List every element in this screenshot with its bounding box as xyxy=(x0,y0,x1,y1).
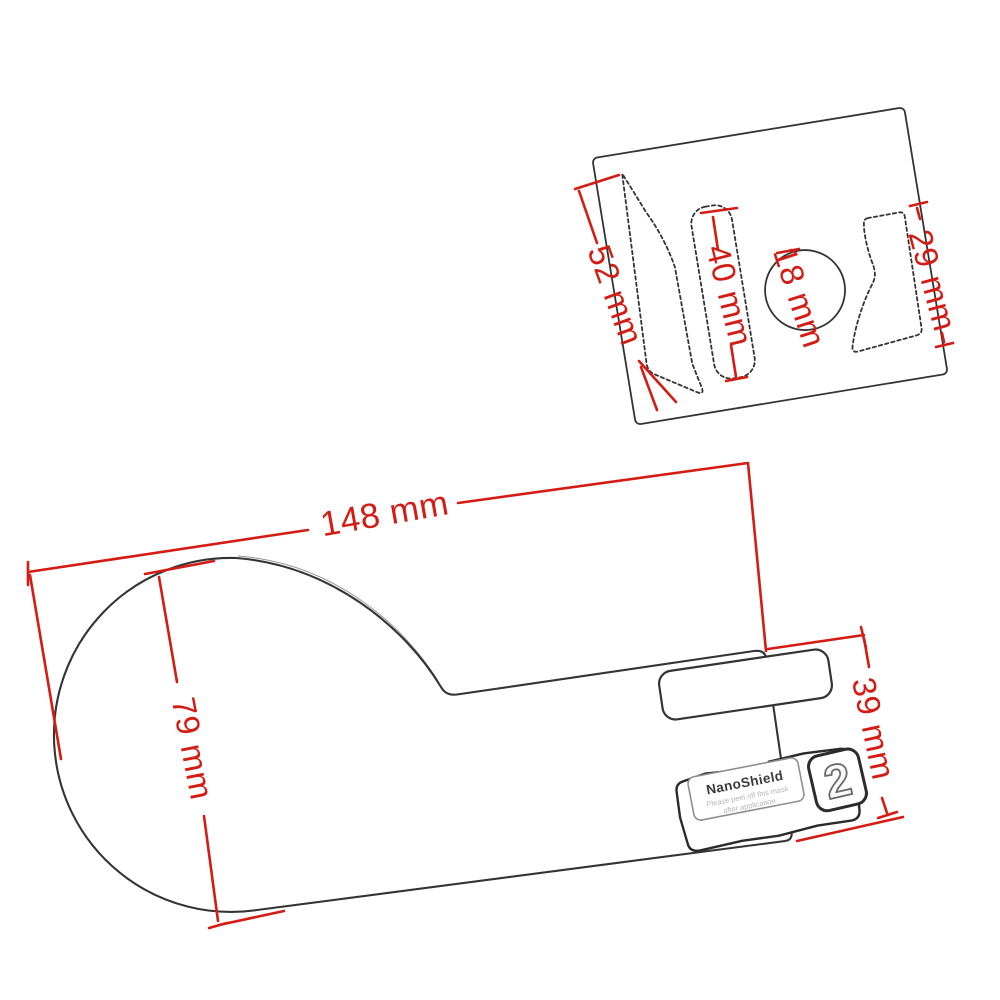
dim-148mm-label: 148 mm xyxy=(317,483,451,544)
dim-79-ext-bottom xyxy=(219,911,284,925)
dim-39-line-a xyxy=(864,638,869,667)
dim-148-line-b xyxy=(458,463,748,503)
product-dimension-diagram: 52 mm 40 mm 18 mm 29 mm xyxy=(0,0,1000,1000)
side-pull-tab xyxy=(657,648,833,721)
step-badge-group: 2 xyxy=(806,747,868,813)
dim-148-ext-left xyxy=(30,575,61,759)
side-pull-tab-group xyxy=(657,648,833,721)
dim-39-line-b xyxy=(882,798,887,813)
dim-148-ext-right xyxy=(748,463,766,651)
diagram-canvas: 52 mm 40 mm 18 mm 29 mm xyxy=(0,0,1000,1000)
dim-39-ext-top xyxy=(768,635,864,649)
dim-52-line-a xyxy=(579,191,597,243)
